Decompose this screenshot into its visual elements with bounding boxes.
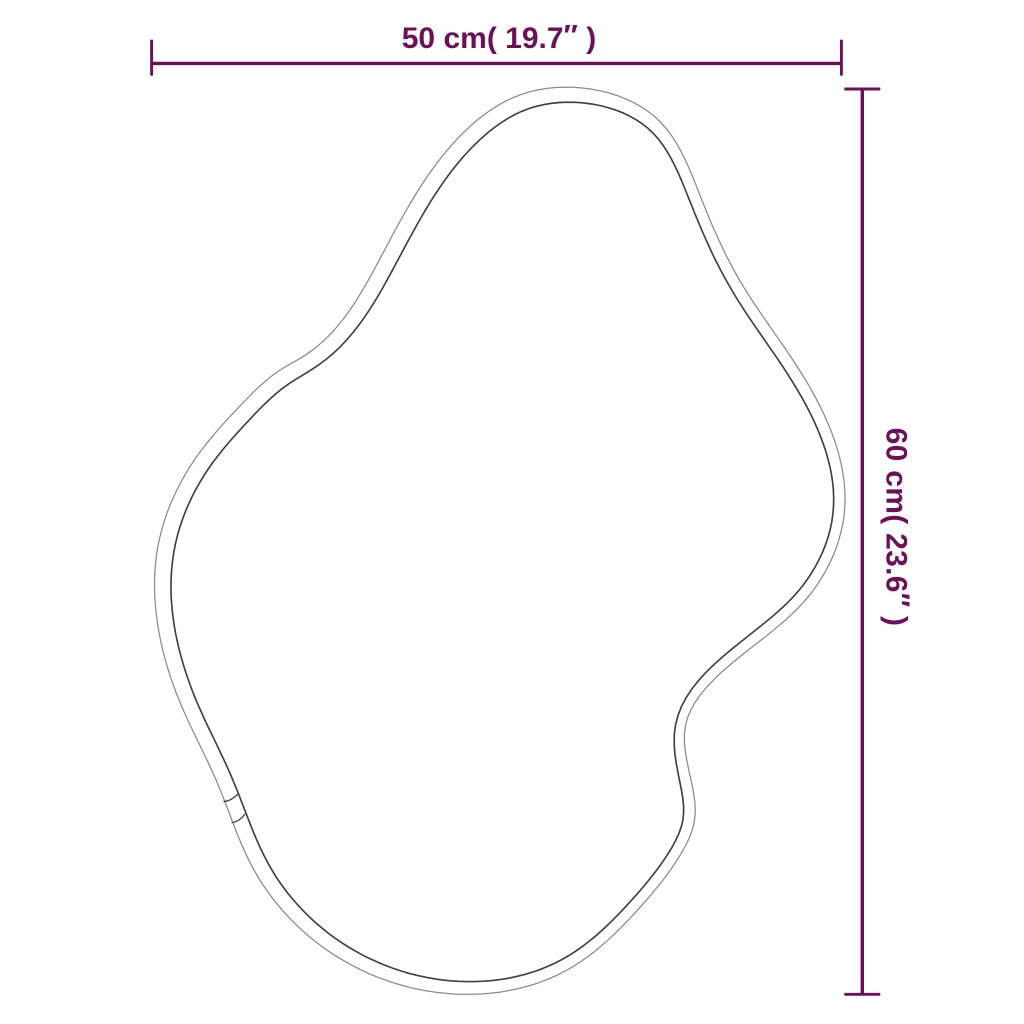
svg-text:50 cm( 19.7″ ): 50 cm( 19.7″ )	[402, 20, 596, 56]
svg-text:60 cm( 23.6″ ): 60 cm( 23.6″ )	[880, 428, 916, 627]
